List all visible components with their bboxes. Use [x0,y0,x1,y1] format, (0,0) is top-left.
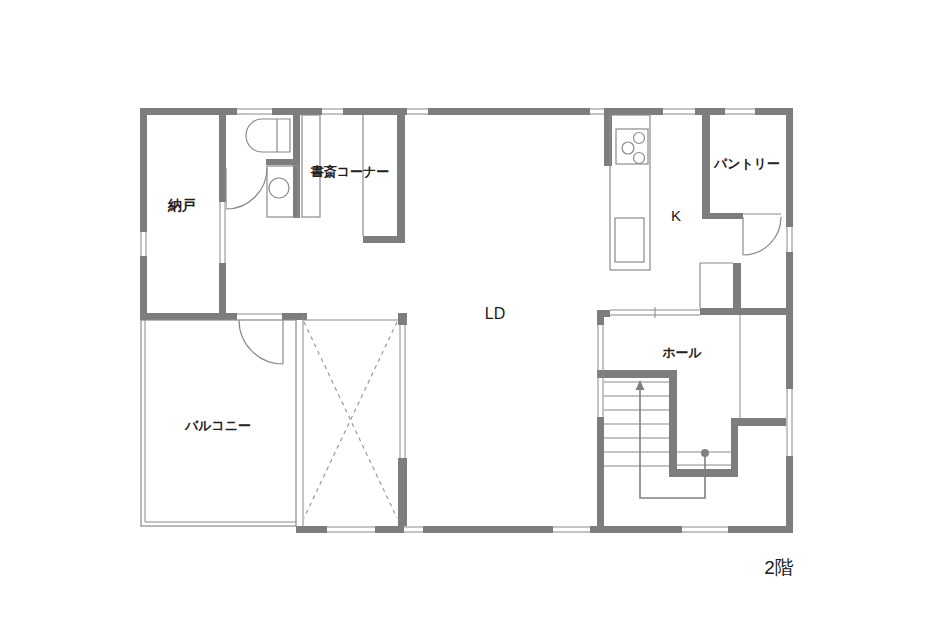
wall-stair-bottom [669,469,738,477]
window-bottom-hall [682,526,728,533]
wall-closet-partition [733,263,741,315]
wall-pantry-bottom [702,213,743,219]
stove-burner-icon [616,129,648,164]
window-left-nando [140,232,147,256]
wall-void-right [398,458,407,527]
fixtures [246,115,733,308]
window-top-kitchen [663,108,695,115]
wall-stair-center-vertical [669,370,677,477]
wall-study-stub [363,236,405,243]
room-label-nando: 納戸 [167,197,196,213]
wall-hall-top-right [700,308,786,315]
wall-pantry-left [702,108,710,214]
floor-plan-page: 納戸 書斎コーナー LD K パントリー ホール バルコニー 2階 [0,0,935,640]
wall-right [786,108,793,533]
wall-stair-closet-left [731,418,738,477]
wall-stair-closet-top [731,418,786,426]
open-void-x-icon [304,322,397,518]
window-bottom-ld-right [553,526,590,533]
wall-study-right [397,108,405,243]
kitchen-closet [700,263,733,308]
room-label-balcony: バルコニー [184,418,251,433]
kitchen-sink-icon [615,218,644,262]
wall-left [140,108,147,320]
stair-treads-upper [604,382,669,466]
window-top-pantry [725,108,755,115]
window-top-toilet [237,108,272,115]
window-right-kitchen-passage [786,227,793,252]
floor-plan-canvas: 納戸 書斎コーナー LD K パントリー ホール バルコニー 2階 [0,0,935,640]
window-bottom-void [327,526,375,533]
window-top-ld-left [407,108,428,115]
pantry-door [743,213,781,255]
open-void [303,317,405,527]
room-label-study-corner: 書斎コーナー [310,164,390,179]
nando-sliding-door [219,202,226,263]
room-label-pantry: パントリー [713,156,780,171]
window-bottom-ld-left [404,526,423,533]
wall-void-pillar [398,313,407,325]
wall-ld-hall-upper [597,310,604,325]
floor-label: 2階 [764,557,794,578]
window-top-study [322,108,343,115]
wall-nando-right-upper [219,108,226,202]
window-top-ld-right [590,108,604,115]
wall-nando-right-lower [219,263,226,320]
wall-stair-top [597,370,677,378]
room-labels: 納戸 書斎コーナー LD K パントリー ホール バルコニー 2階 [167,156,794,578]
room-label-ld: LD [485,305,505,322]
toilet-door [226,159,267,209]
toilet-icon [246,119,290,152]
wall-kitchen-stub [604,108,612,166]
window-right-hall [786,389,793,456]
hall-top-opening [610,307,700,318]
room-label-hall: ホール [662,345,702,360]
wall-toilet-right [293,108,300,218]
wall-ld-hall-lower [597,417,604,533]
room-label-kitchen: K [671,207,681,224]
balcony-door [237,313,283,364]
